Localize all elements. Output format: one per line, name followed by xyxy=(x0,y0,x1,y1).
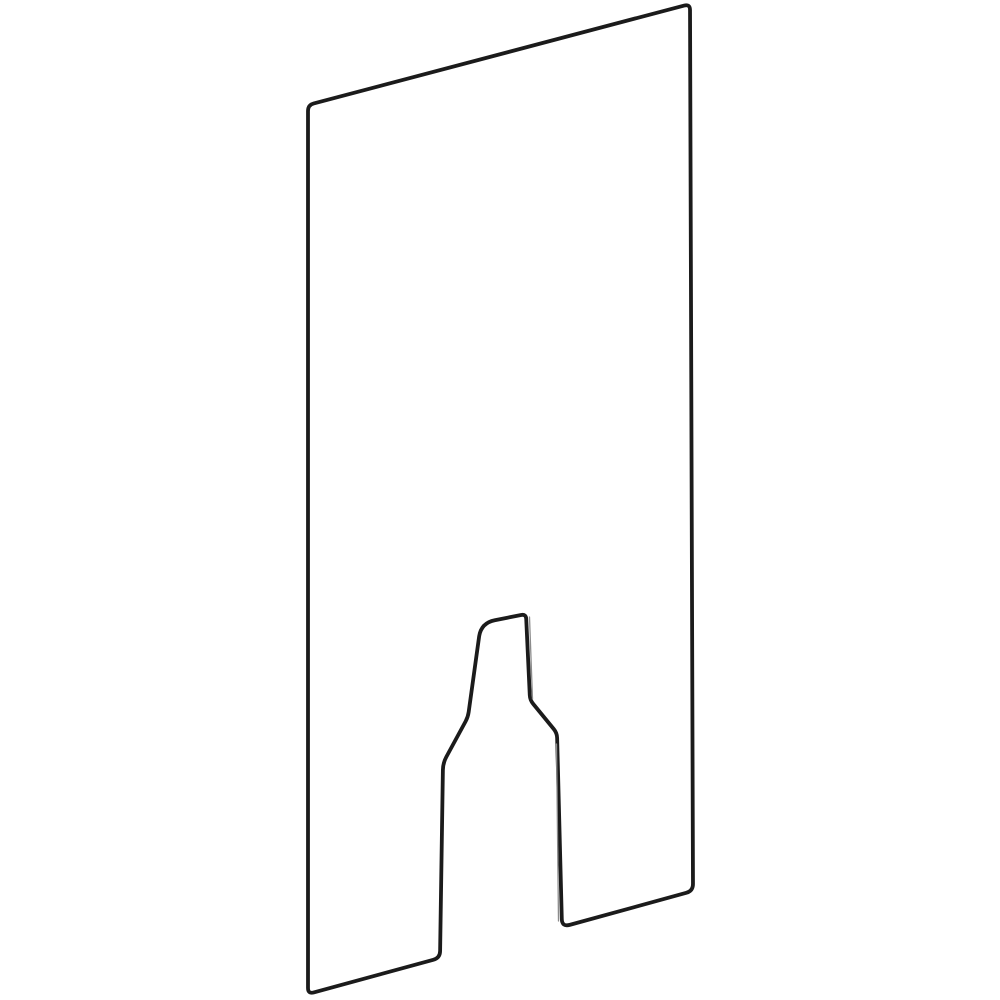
glass-panel-drawing xyxy=(0,0,1000,1000)
figure-container xyxy=(0,0,1000,1000)
panel-outline xyxy=(308,5,693,993)
thickness-hairlines xyxy=(530,617,559,921)
